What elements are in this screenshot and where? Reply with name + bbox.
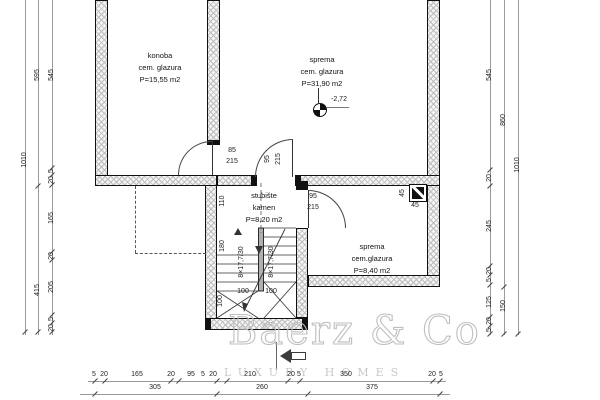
dim-tick (501, 331, 507, 337)
dim-label: 100 (237, 288, 249, 296)
dim-label: 545 (48, 69, 56, 81)
dimension-line (80, 394, 450, 395)
dim-label: 5 (486, 278, 494, 282)
dim-label: 95 (309, 193, 317, 201)
watermark-brand: Baerz & Co (228, 308, 481, 354)
dim-label: 100 (265, 288, 277, 296)
dimension-line (88, 381, 446, 382)
room-name: sprema (352, 241, 393, 253)
dim-label: 595 (34, 69, 42, 81)
wall-stair-left (205, 181, 217, 330)
dim-label: 215 (275, 153, 283, 165)
chimney-fill (412, 187, 424, 199)
wall-konoba-sprema-divider (207, 0, 220, 145)
dim-label: 545 (486, 69, 494, 81)
wall-corner-cap (205, 318, 211, 330)
level-marker-line (327, 107, 349, 108)
dim-label: 45 (399, 189, 407, 197)
room-area: P=15,55 m2 (139, 74, 182, 86)
room-area: P=31,90 m2 (301, 78, 344, 90)
dim-label: 1010 (514, 157, 522, 173)
room-finish: cem.glazura (352, 253, 393, 265)
dim-label: 95 (264, 155, 272, 163)
dim-label: 210 (244, 371, 256, 379)
dim-label: 245 (486, 220, 494, 232)
wall-mid-left (95, 175, 217, 186)
room-area: P=8,40 m2 (352, 265, 393, 277)
room-finish: cem. glazura (301, 66, 344, 78)
dim-label: 8×17,7/30 (268, 246, 276, 277)
dim-label: 215 (226, 158, 238, 166)
dim-label: 375 (366, 384, 378, 392)
dim-label: 85 (228, 147, 236, 155)
dim-label: 305 (149, 384, 161, 392)
dim-label: 180 (219, 240, 227, 252)
room-name: sprema (301, 54, 344, 66)
level-marker-icon (313, 103, 327, 117)
dim-label: 350 (340, 371, 352, 379)
dim-label: 1010 (21, 152, 29, 168)
elevation-value: -2,72 (331, 96, 347, 104)
dim-tick (515, 331, 521, 337)
door-swing-arc (178, 141, 212, 175)
dim-label: 415 (34, 284, 42, 296)
room-finish: cem. glazura (139, 62, 182, 74)
dim-label: 165 (131, 371, 143, 379)
dim-label: 165 (48, 212, 56, 224)
door-swing-arc (255, 139, 293, 177)
dim-label: 5 (201, 371, 205, 379)
dim-label: 860 (500, 114, 508, 126)
projection-dashed-line (135, 253, 206, 254)
dim-label: 205 (48, 281, 56, 293)
dim-label: 20 (209, 371, 217, 379)
dim-label: 150 (500, 300, 508, 312)
dim-label: 215 (307, 204, 319, 212)
dim-label: 20 (287, 371, 295, 379)
dim-label: 100 (217, 295, 225, 307)
dim-label: 5 (297, 371, 301, 379)
dim-label: 8×17,7/30 (238, 246, 246, 277)
wall-left-outer (95, 0, 108, 186)
dim-label: 20 (486, 174, 494, 182)
door-leaf (212, 141, 213, 175)
dim-label: 260 (256, 384, 268, 392)
wall-stair-right (296, 228, 308, 318)
dim-tick (487, 331, 493, 337)
wall-right-outer (427, 0, 440, 287)
room-label-sprema-small: sprema cem.glazura P=8,40 m2 (352, 241, 393, 277)
dim-label: 125 (486, 296, 494, 308)
door-jamb-cap (296, 181, 308, 190)
room-name: konoba (139, 50, 182, 62)
projection-dashed-line (135, 186, 136, 253)
entrance-arrow-bar (291, 352, 306, 360)
room-finish: kamen (246, 202, 282, 214)
dim-label: 110 (219, 195, 227, 206)
room-area: P=8,20 m2 (246, 214, 282, 226)
floor-plan-canvas: konoba cem. glazura P=15,55 m2 sprema ce… (0, 0, 600, 400)
level-marker-line (318, 88, 319, 103)
room-label-stubiste: stubište kamen P=8,20 m2 (246, 190, 282, 226)
dim-label: 45 (411, 202, 419, 210)
dim-label: 5 (92, 371, 96, 379)
room-name: stubište (246, 190, 282, 202)
room-label-sprema-large: sprema cem. glazura P=31,90 m2 (301, 54, 344, 90)
dim-label: 95 (187, 371, 195, 379)
entrance-arrow-icon (280, 349, 291, 363)
room-label-konoba: konoba cem. glazura P=15,55 m2 (139, 50, 182, 86)
